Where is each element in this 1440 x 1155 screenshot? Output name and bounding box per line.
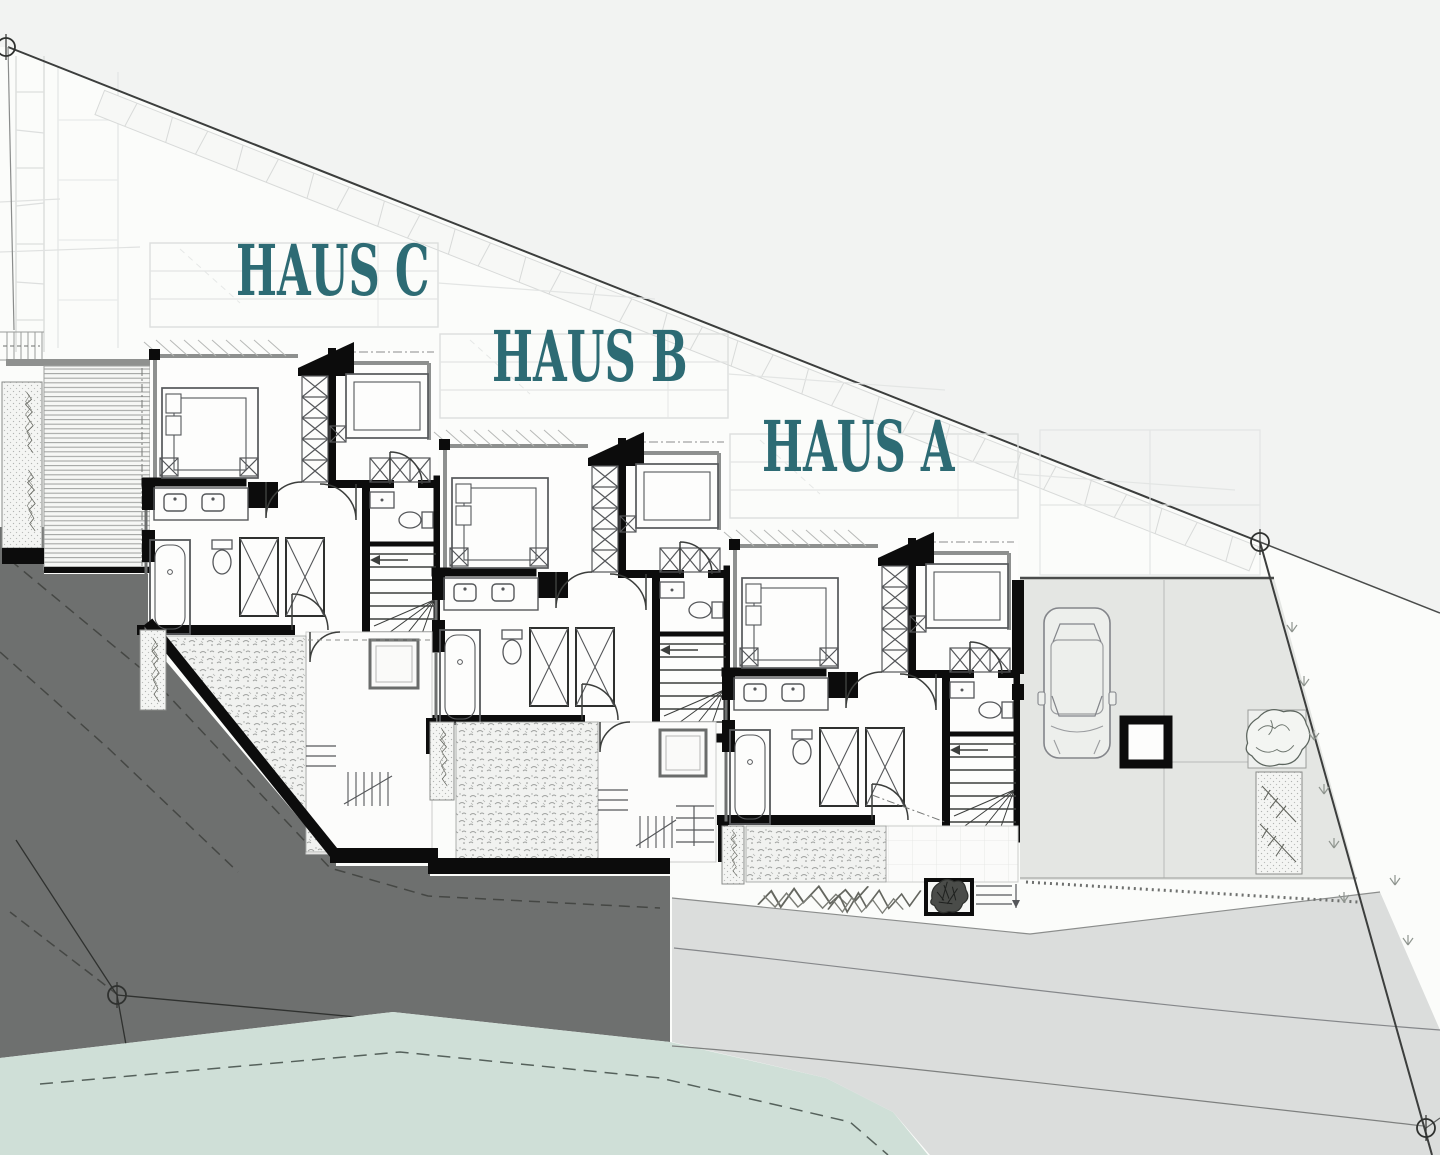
lawn bbox=[456, 722, 598, 862]
driveway bbox=[1012, 578, 1357, 880]
west-deck bbox=[44, 366, 150, 570]
deck-top-wall bbox=[6, 359, 150, 366]
label-haus-c: HAUS C bbox=[236, 229, 429, 312]
haus-b-floor-plan bbox=[432, 430, 732, 740]
lawn bbox=[746, 826, 886, 882]
label-haus-b: HAUS B bbox=[492, 315, 688, 398]
haus-c-title: HAUS C bbox=[236, 229, 429, 312]
haus-a-floor-plan bbox=[722, 530, 1022, 840]
boundary-line-west bbox=[8, 47, 14, 330]
planter bbox=[430, 722, 454, 800]
planter-end-wall bbox=[2, 548, 44, 564]
haus-b-garden bbox=[426, 718, 716, 874]
road-fence-dotted bbox=[1026, 882, 1358, 902]
haus-a-title: HAUS A bbox=[762, 405, 955, 488]
patio-planter bbox=[660, 730, 706, 776]
garden-south-wall bbox=[428, 858, 670, 874]
patio-steps bbox=[976, 884, 1016, 908]
site-plan-drawing: HAUS C HAUS B HAUS A bbox=[0, 0, 1440, 1155]
planter bbox=[140, 630, 166, 710]
patio bbox=[886, 826, 1018, 882]
west-planter bbox=[2, 382, 42, 548]
patio-planter bbox=[370, 640, 418, 688]
car-top-view-icon bbox=[1038, 608, 1116, 758]
haus-b-title: HAUS B bbox=[492, 315, 688, 398]
garden-south-wall bbox=[330, 848, 438, 863]
west-access bbox=[0, 332, 150, 570]
street-stairs bbox=[0, 332, 44, 360]
site-plan-canvas: HAUS C HAUS B HAUS A bbox=[0, 0, 1440, 1155]
haus-c-floor-plan bbox=[142, 340, 442, 650]
lightwell-frame bbox=[1124, 720, 1168, 764]
garage-wall bbox=[1012, 580, 1024, 674]
label-haus-a: HAUS A bbox=[762, 405, 955, 488]
